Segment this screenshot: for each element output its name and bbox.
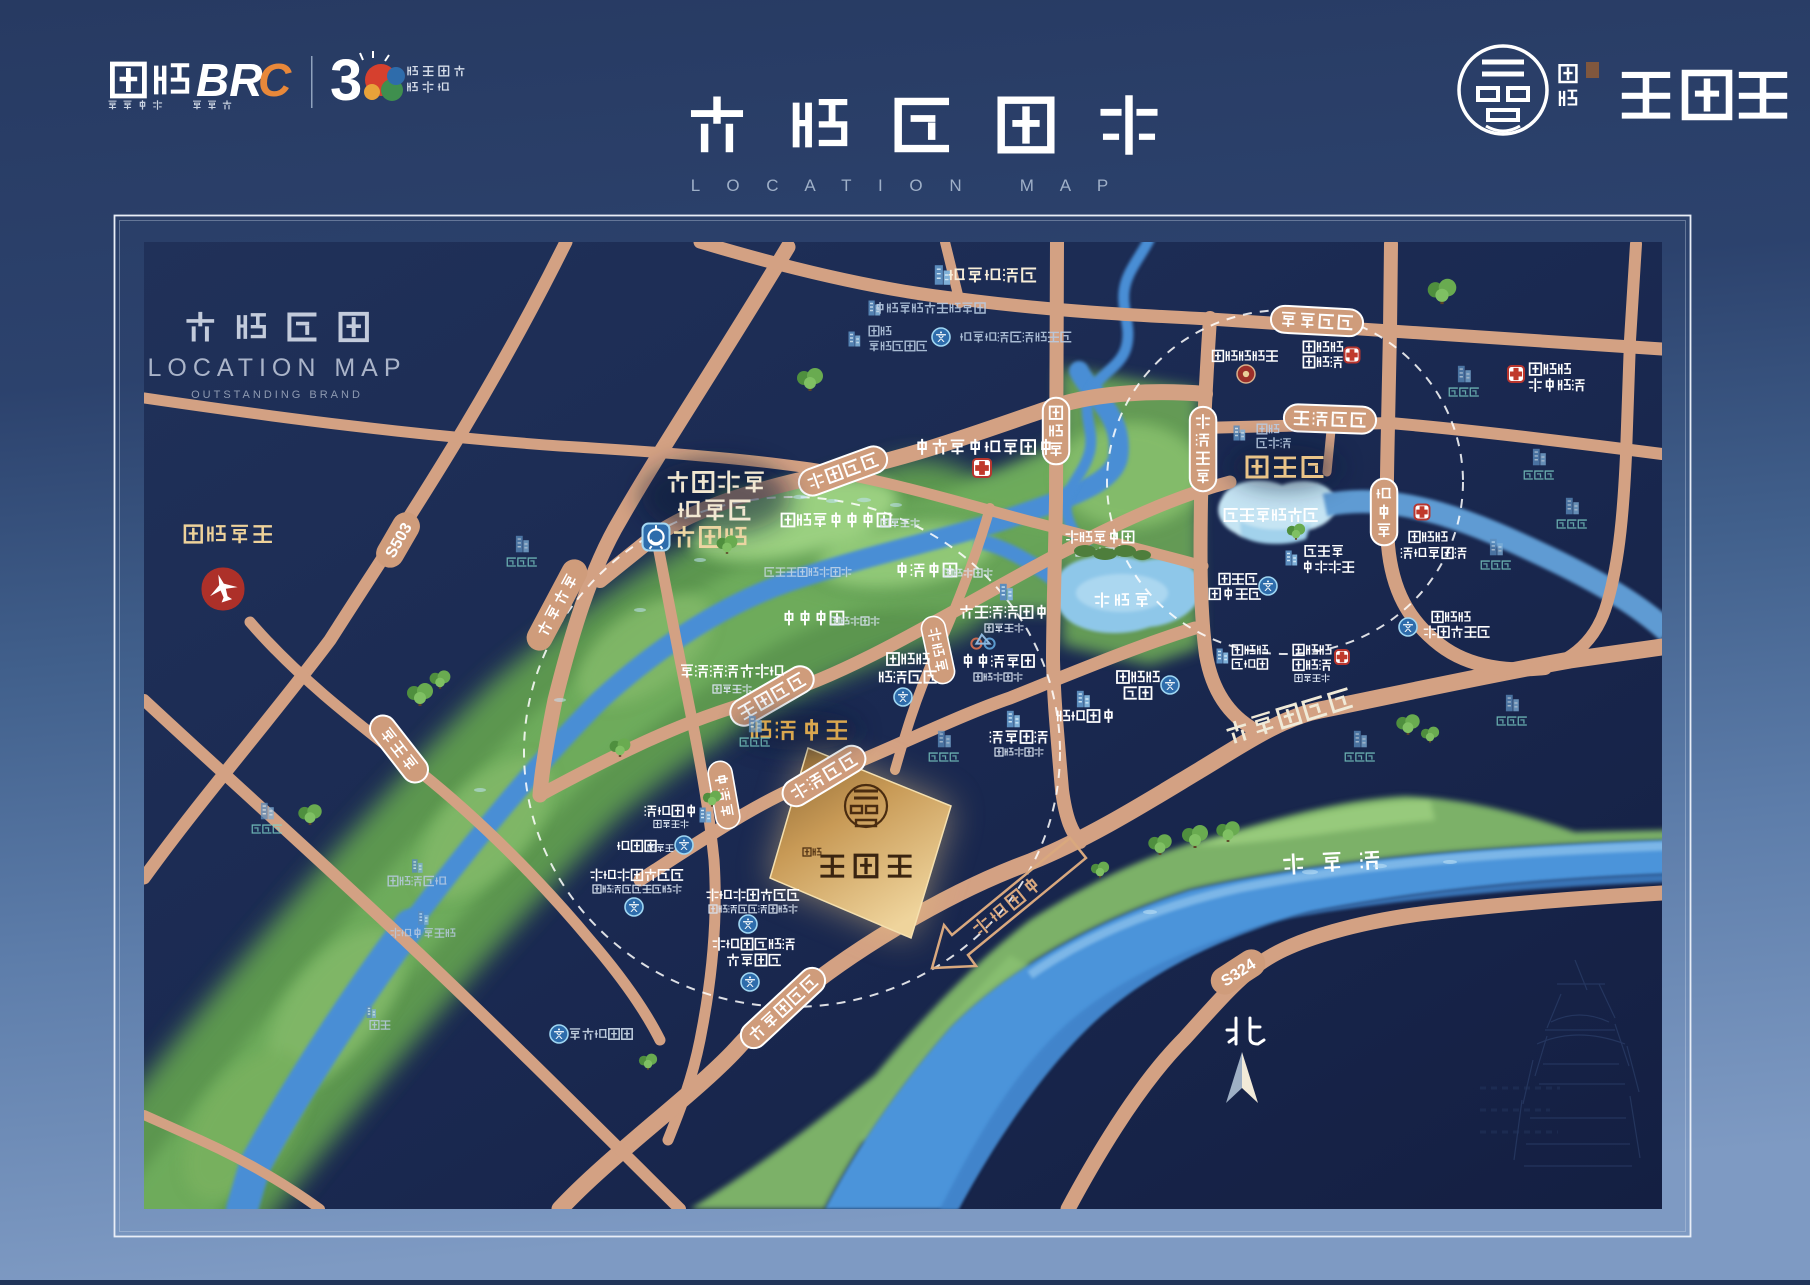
svg-text:L O C A T I O N M A P: L O C A T I O N M A P bbox=[691, 176, 1119, 195]
svg-text:BR: BR bbox=[196, 54, 262, 106]
svg-text:LOCATION MAP: LOCATION MAP bbox=[147, 354, 406, 382]
svg-text:C: C bbox=[258, 54, 292, 106]
svg-text:3: 3 bbox=[330, 48, 362, 113]
svg-text:OUTSTANDING BRAND: OUTSTANDING BRAND bbox=[191, 389, 363, 401]
